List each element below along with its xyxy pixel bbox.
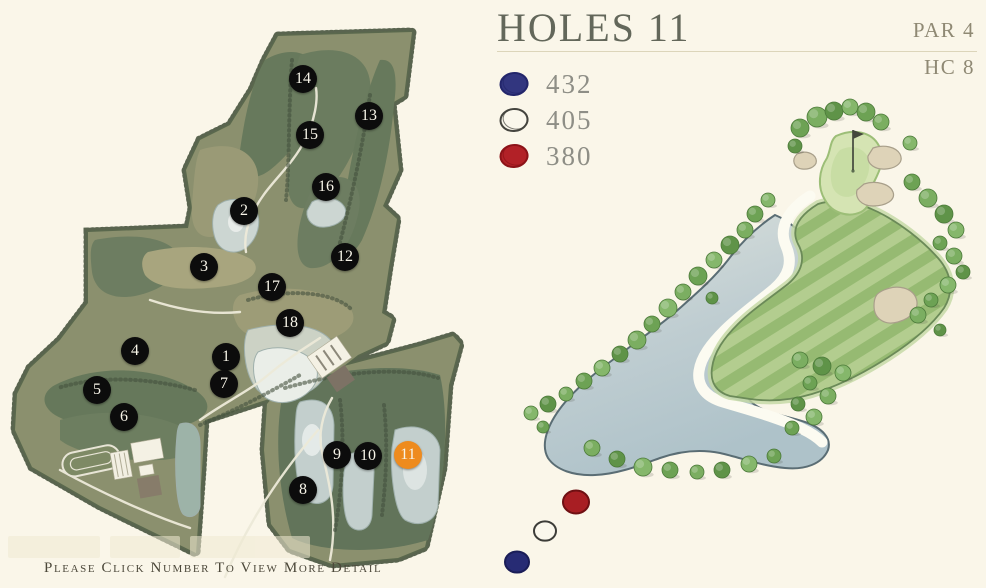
course-map-panel: 123456789101112131415161718 Please Click…	[0, 0, 470, 588]
tee-markers	[505, 491, 589, 573]
hole-marker-4[interactable]: 4	[121, 337, 149, 365]
hole-marker-9[interactable]: 9	[323, 441, 351, 469]
hole-marker-5[interactable]: 5	[83, 376, 111, 404]
hole-marker-16[interactable]: 16	[312, 173, 340, 201]
hole-marker-3[interactable]: 3	[190, 253, 218, 281]
white-tee-marker	[534, 521, 556, 540]
hole-marker-14[interactable]: 14	[289, 65, 317, 93]
handicap-label: HC 8	[924, 55, 975, 80]
map-instruction: Please Click Number To View More Detail	[44, 560, 382, 577]
hole-marker-17[interactable]: 17	[258, 273, 286, 301]
hole-markers-layer: 123456789101112131415161718	[0, 0, 470, 588]
par-label: PAR 4	[913, 18, 975, 43]
hole-marker-6[interactable]: 6	[110, 403, 138, 431]
page-title: HOLES 11	[497, 4, 690, 51]
hole-illustration	[490, 90, 986, 588]
blue-tee-marker	[505, 551, 529, 572]
hole-marker-1[interactable]: 1	[212, 343, 240, 371]
red-tee-marker	[563, 491, 589, 514]
hole-marker-10[interactable]: 10	[354, 442, 382, 470]
hole-marker-18[interactable]: 18	[276, 309, 304, 337]
header-divider	[497, 51, 977, 52]
hole-marker-2[interactable]: 2	[230, 197, 258, 225]
watermark	[8, 536, 338, 558]
hole-detail-panel: HOLES 11 PAR 4 HC 8 432405380	[490, 0, 986, 588]
hole-marker-12[interactable]: 12	[331, 243, 359, 271]
hole-marker-8[interactable]: 8	[289, 476, 317, 504]
hole-marker-11[interactable]: 11	[394, 441, 422, 469]
page: 123456789101112131415161718 Please Click…	[0, 0, 986, 588]
hole-marker-15[interactable]: 15	[296, 121, 324, 149]
hole-marker-13[interactable]: 13	[355, 102, 383, 130]
hole-marker-7[interactable]: 7	[210, 370, 238, 398]
